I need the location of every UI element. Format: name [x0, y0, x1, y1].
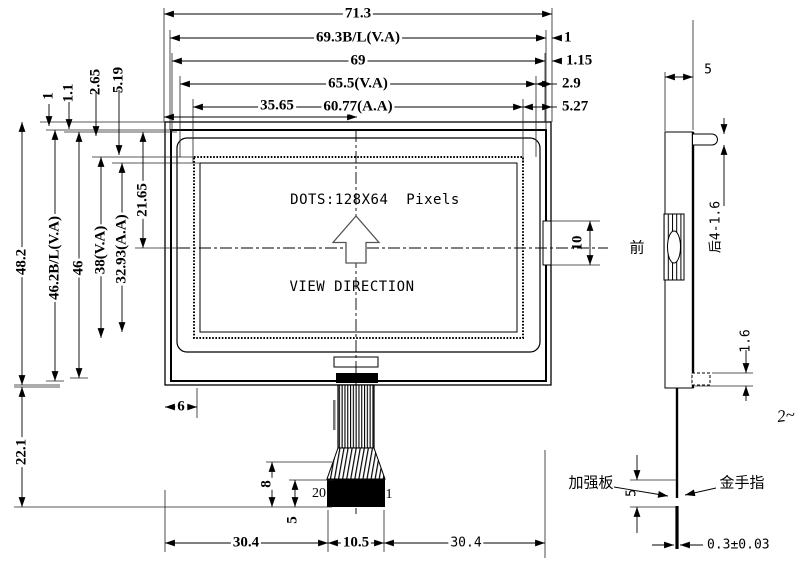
dim-half-width: 35.65 [258, 99, 296, 114]
boss-dim-label: 后4-1.6 [705, 201, 724, 253]
side-view [664, 132, 718, 549]
offset-right-backlight: 1 [562, 31, 574, 46]
handwritten-note: 2~ [776, 405, 796, 427]
dim-total-height: 48.2 [15, 247, 30, 277]
dim-backlight-height: 46.2B/L(V.A) [48, 214, 63, 302]
dim-fpc-width: 10.5 [341, 536, 371, 551]
offset-top-backlight: 1 [42, 92, 57, 100]
offset-top-va: 5.19 [112, 67, 127, 93]
centerlines [178, 130, 608, 514]
dim-stiffener-thickness: 1.6 [739, 329, 754, 352]
dim-aa-height: 32.93(A.A) [115, 212, 130, 285]
dim-glass-height: 46 [72, 259, 87, 278]
pin-20-label: 20 [312, 486, 326, 502]
dim-side-thickness: 5 [704, 63, 712, 78]
dim-glass-width: 69 [349, 54, 368, 69]
stiffener-hidden [692, 373, 710, 385]
stiffener-leader [614, 487, 668, 496]
dim-total-width: 71.3 [343, 7, 373, 22]
dim-backlight-width: 69.3B/L(V.A) [314, 31, 402, 46]
dim-aa-width: 60.77(A.A) [321, 100, 394, 115]
lcd-module-dimension-drawing: 71.3 69.3B/L(V.A) 69 65.5(V.A) 60.77(A.A… [0, 0, 802, 583]
fpc-flare [327, 448, 385, 479]
offset-right-va: 2.9 [560, 77, 583, 92]
offset-top-glass: 1.1 [62, 84, 77, 103]
fpc-attach-bar [336, 373, 378, 383]
locating-boss [693, 134, 718, 145]
pin-1-label: 1 [386, 487, 393, 503]
ribbon-marking [333, 400, 336, 430]
fpc-ribbon [338, 385, 374, 448]
gold-finger-leader [685, 488, 716, 495]
view-direction-arrow [333, 216, 379, 263]
dim-fpc-thickness: 0.3±0.03 [707, 538, 770, 553]
dim-bottom-left: 30.4 [231, 536, 261, 551]
offset-right-glass: 1.15 [564, 54, 594, 69]
dim-fpc-length: 22.1 [15, 437, 30, 467]
offset-top-bezel: 2.65 [89, 69, 104, 95]
dim-va-height: 38(V.A) [94, 224, 109, 276]
view-direction-text: VIEW DIRECTION [289, 279, 414, 295]
dim-stiffener-height: 5 [286, 516, 301, 524]
dim-half-height: 21.65 [136, 181, 151, 219]
dim-bottom-right: 30.4 [448, 536, 483, 551]
dim-edge-offset: 6 [175, 400, 187, 415]
dim-va-width: 65.5(V.A) [326, 77, 390, 92]
dim-flare-height: 8 [260, 478, 275, 490]
offset-right-aa: 5.27 [560, 100, 590, 115]
front-side-label: 前 [629, 237, 644, 258]
stiffener-label: 加强板 [568, 472, 613, 493]
gold-finger-label: 金手指 [719, 472, 764, 493]
dim-gold-length: 5 [625, 489, 640, 497]
dim-notch-height: 10 [571, 236, 586, 251]
fpc-stiffener-block [327, 479, 385, 507]
dots-resolution-text: DOTS:128X64 Pixels [290, 192, 460, 208]
fpc-connector [327, 373, 385, 507]
right-notch [543, 221, 551, 265]
